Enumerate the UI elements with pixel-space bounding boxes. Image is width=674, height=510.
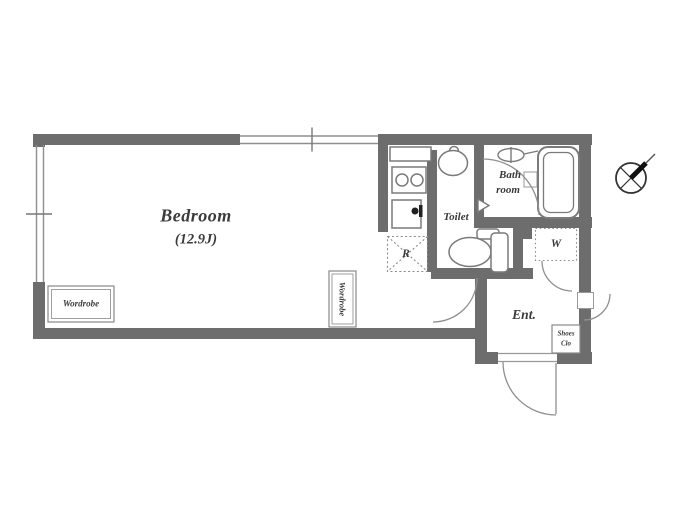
- washroom: [439, 147, 509, 273]
- wall-top-left: [33, 134, 240, 145]
- faucet-knob-icon: [412, 208, 419, 215]
- washer-door-arc: [542, 261, 572, 291]
- kitchen-counter: [390, 147, 431, 161]
- wall-bath-bottom: [474, 217, 592, 228]
- toilet-tank-icon: [491, 233, 508, 272]
- shower-handle: [524, 151, 538, 154]
- wall-toilet-right: [513, 228, 523, 273]
- corridor-door-arc: [433, 278, 477, 322]
- wardrobe-left-label: Wordrobe: [63, 299, 99, 308]
- compass-diagonal-2: [620, 178, 631, 189]
- service-hatch: [578, 293, 594, 309]
- toilet-bowl-icon: [449, 238, 491, 267]
- entry-door-arc: [503, 362, 556, 415]
- refrigerator-label: R: [402, 248, 410, 260]
- storage: [48, 271, 580, 353]
- toilet-label: Toilet: [443, 212, 468, 224]
- washer-label: W: [551, 238, 561, 250]
- wall-bottom-bedroom: [33, 328, 487, 339]
- stove-burner-right-icon: [411, 174, 423, 186]
- entry-opening: [498, 350, 557, 365]
- floor-plan-drawing: [0, 0, 674, 510]
- kitchen: [390, 147, 431, 228]
- shoe-closet-label-line1: Shoes: [557, 330, 574, 337]
- faucet-icon: [419, 205, 423, 217]
- stove-burner-left-icon: [396, 174, 408, 186]
- bathtub-inner: [544, 153, 574, 213]
- shoe-closet-label-line2: Clo: [561, 340, 571, 347]
- bedroom-area-label: (12.9J): [175, 232, 217, 247]
- wall-top-right: [378, 134, 592, 145]
- wardrobe-mid-label: Wordrobe: [338, 282, 347, 316]
- wall-kitchen-left: [378, 145, 388, 232]
- floor-plan: Bedroom (12.9J) Wordrobe Wordrobe Toilet…: [0, 0, 674, 510]
- wall-entrance-left: [475, 277, 487, 364]
- bedroom-label: Bedroom: [160, 207, 232, 226]
- wall-right: [579, 134, 591, 364]
- wall-stub-washer: [523, 217, 532, 239]
- compass-north-tip: [646, 154, 655, 163]
- bathroom-label-line1: Bath: [499, 170, 521, 182]
- wash-basin-icon: [439, 151, 468, 176]
- wall-kitchen-right: [427, 150, 437, 272]
- bathroom-label-line2: room: [496, 185, 520, 197]
- compass-icon: [616, 154, 655, 193]
- entrance-label: Ent.: [512, 308, 536, 322]
